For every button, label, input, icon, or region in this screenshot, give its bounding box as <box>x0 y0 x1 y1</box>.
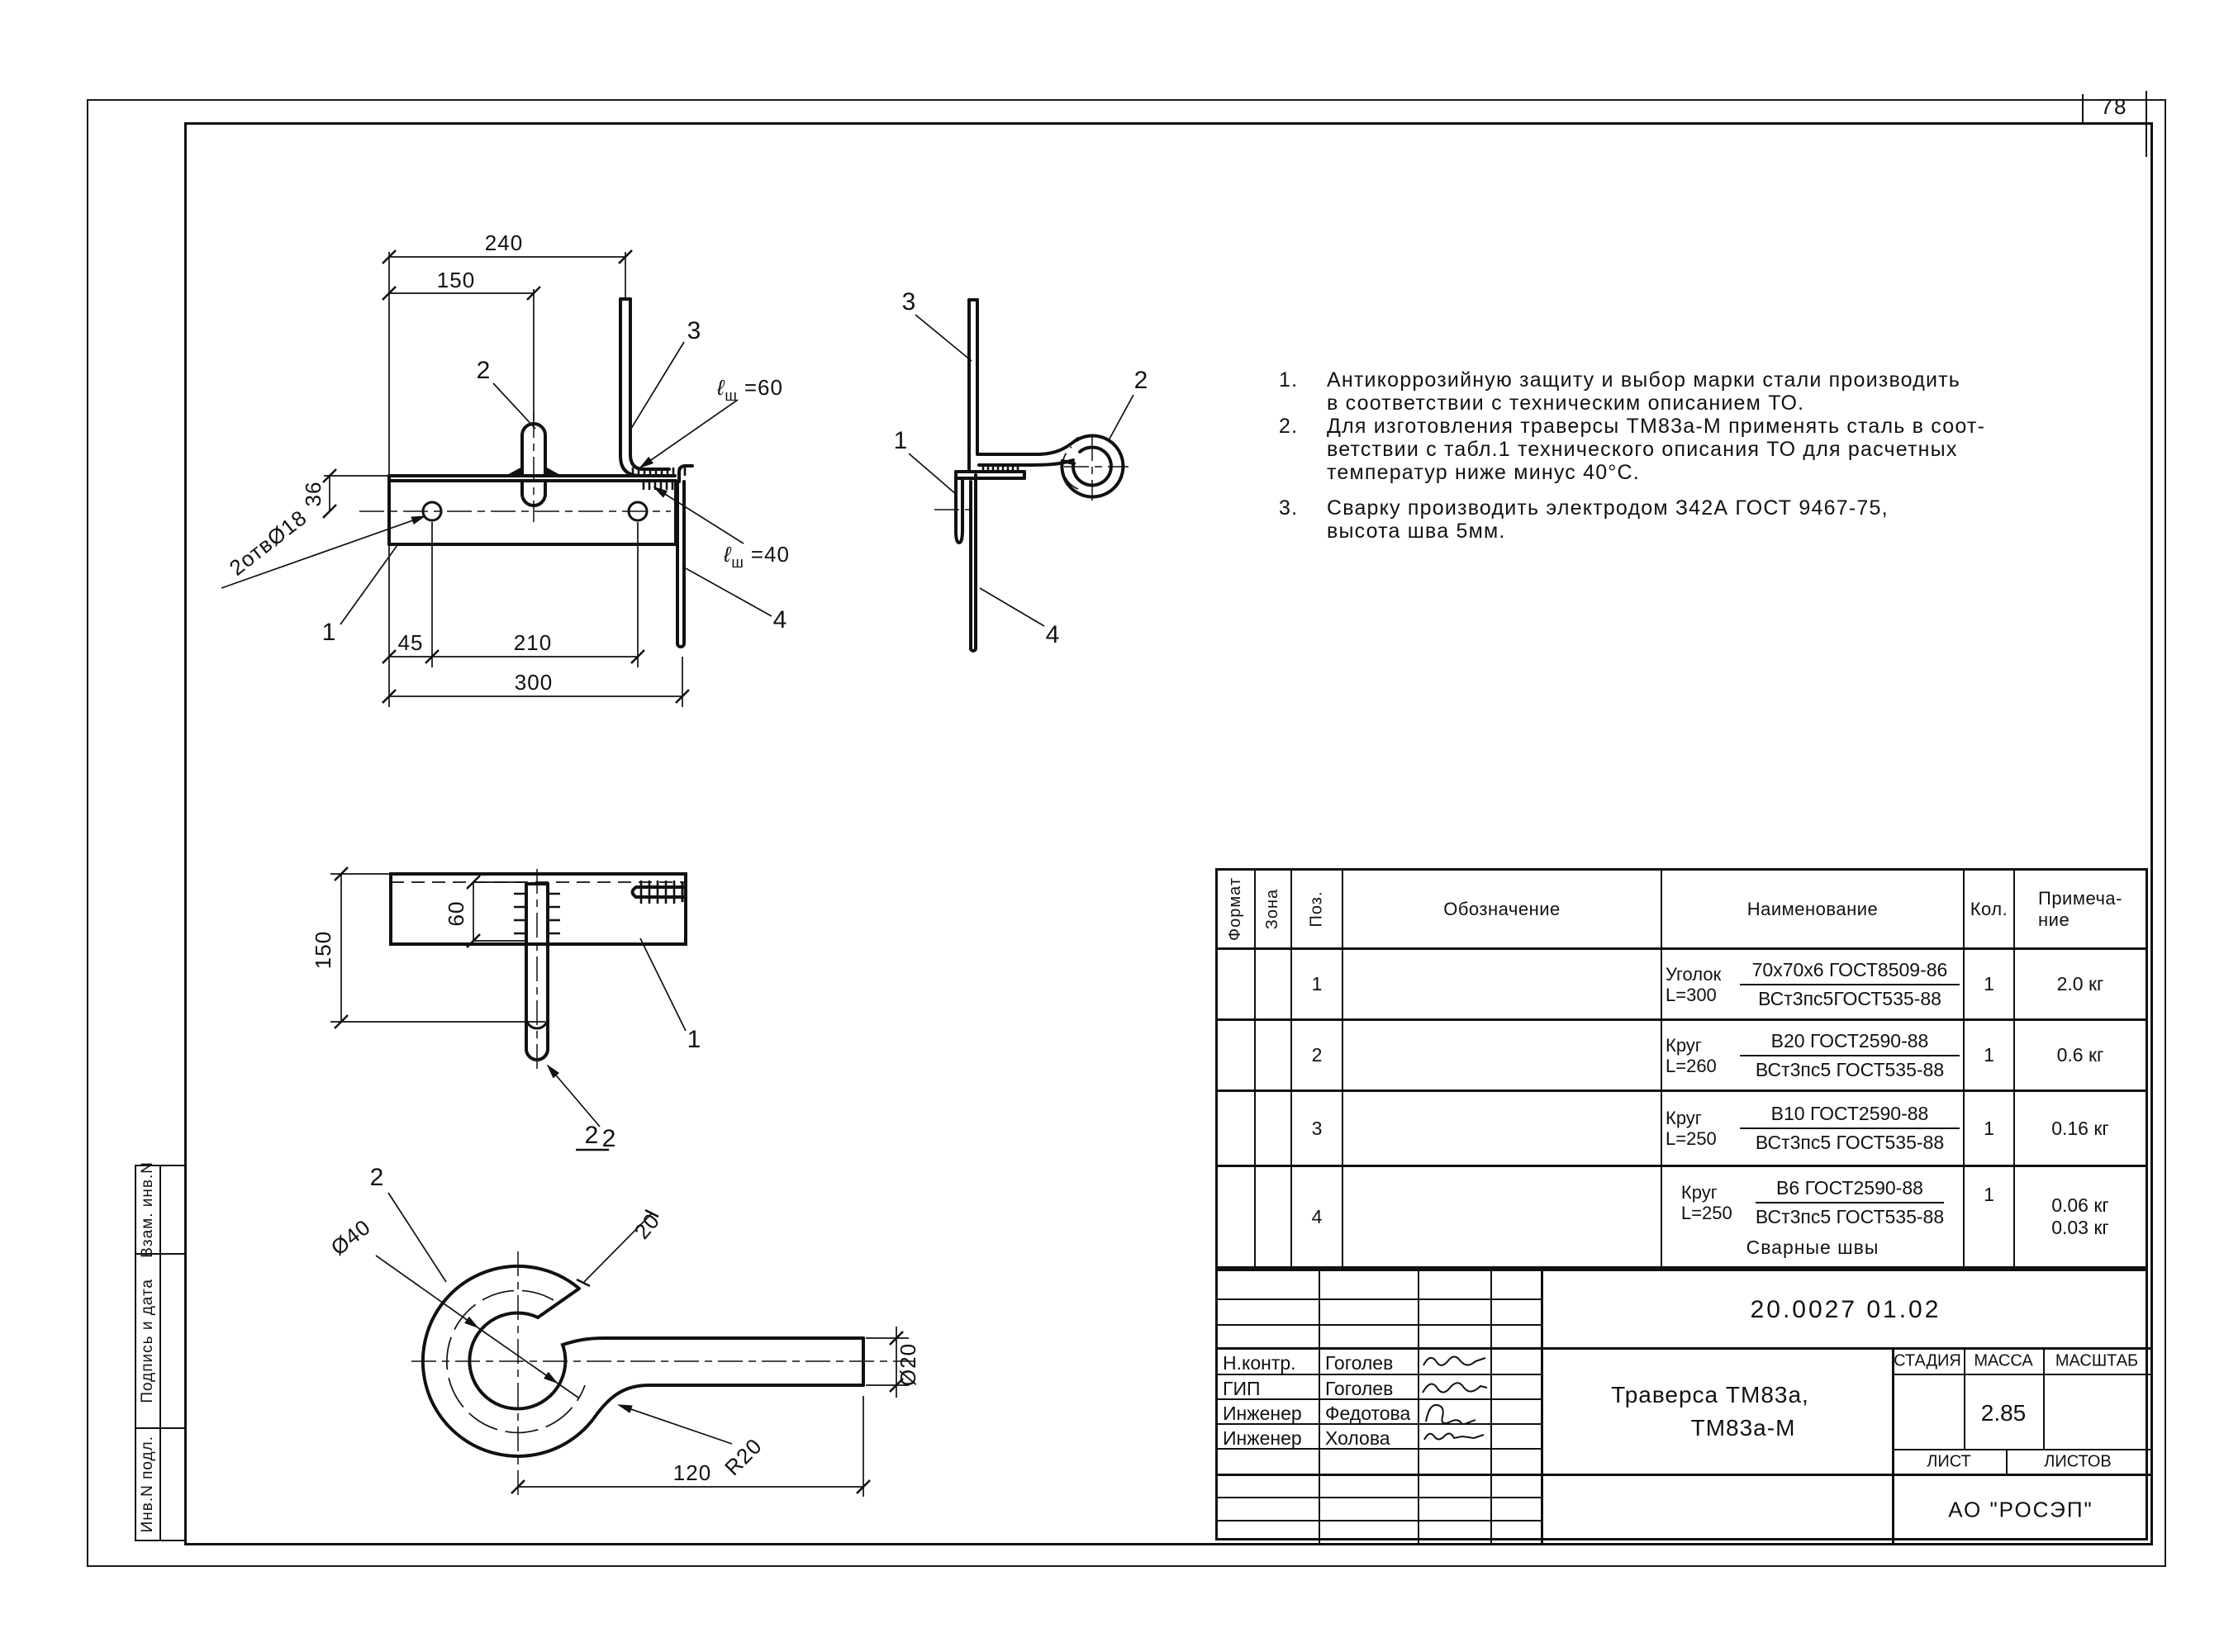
ref-4: 4 <box>773 606 787 634</box>
ref-2: 2 <box>1134 367 1148 394</box>
weld-length-40: ℓш=40 <box>723 542 790 571</box>
dim-36: 36 <box>301 482 326 507</box>
ref-2: 2 <box>602 1125 616 1152</box>
dim-210: 210 <box>514 630 552 655</box>
dim-150: 150 <box>311 931 335 969</box>
dim-d40: Ø40 <box>326 1214 376 1260</box>
view3-plan: 150 60 1 2 <box>311 867 701 1152</box>
ref-3: 3 <box>902 288 916 316</box>
dim-45: 45 <box>398 630 424 655</box>
view1-part-outline <box>389 299 692 647</box>
ref-2: 2 <box>477 357 491 384</box>
view4-dimension-lines <box>376 1210 909 1497</box>
ref-1: 1 <box>687 1026 701 1053</box>
ref-3: 3 <box>687 317 701 344</box>
view1-front: 240 150 36 45 210 300 2отвØ18 2 3 1 4 ℓш… <box>221 230 790 707</box>
dim-240: 240 <box>485 230 523 255</box>
dim-300: 300 <box>515 670 553 695</box>
drawing-sheet: 78 Взам. инв.N Подпись и дата Инв.N подл… <box>0 0 2224 1652</box>
drawing-views: 240 150 36 45 210 300 2отвØ18 2 3 1 4 ℓш… <box>0 0 2224 1652</box>
view4-centerlines <box>411 1251 915 1497</box>
dim-150: 150 <box>437 268 475 292</box>
ref-2: 2 <box>370 1164 384 1191</box>
view4-hook-detail: 2 <box>326 1122 920 1497</box>
weld-length-60: ℓш=60 <box>716 375 783 404</box>
ref-4: 4 <box>1046 621 1060 648</box>
view3-leaders <box>548 938 686 1127</box>
view-designator: 2 <box>585 1122 599 1149</box>
dim-120: 120 <box>673 1460 711 1485</box>
view4-leaders <box>388 1193 446 1282</box>
holes-label: 2отвØ18 <box>225 505 311 580</box>
view3-dimension-lines <box>330 867 545 1074</box>
dim-60: 60 <box>444 901 468 927</box>
view1-dimension-lines <box>323 250 689 707</box>
view3-weld-hatch <box>514 881 674 933</box>
view2-side: 3 1 2 4 <box>894 288 1148 651</box>
dim-d20: Ø20 <box>896 1343 920 1386</box>
ref-1: 1 <box>894 427 908 454</box>
view2-part-outline <box>956 300 1123 651</box>
dim-r20: R20 <box>720 1433 767 1480</box>
dim-20: 20 <box>630 1208 665 1244</box>
ref-1: 1 <box>322 619 336 646</box>
